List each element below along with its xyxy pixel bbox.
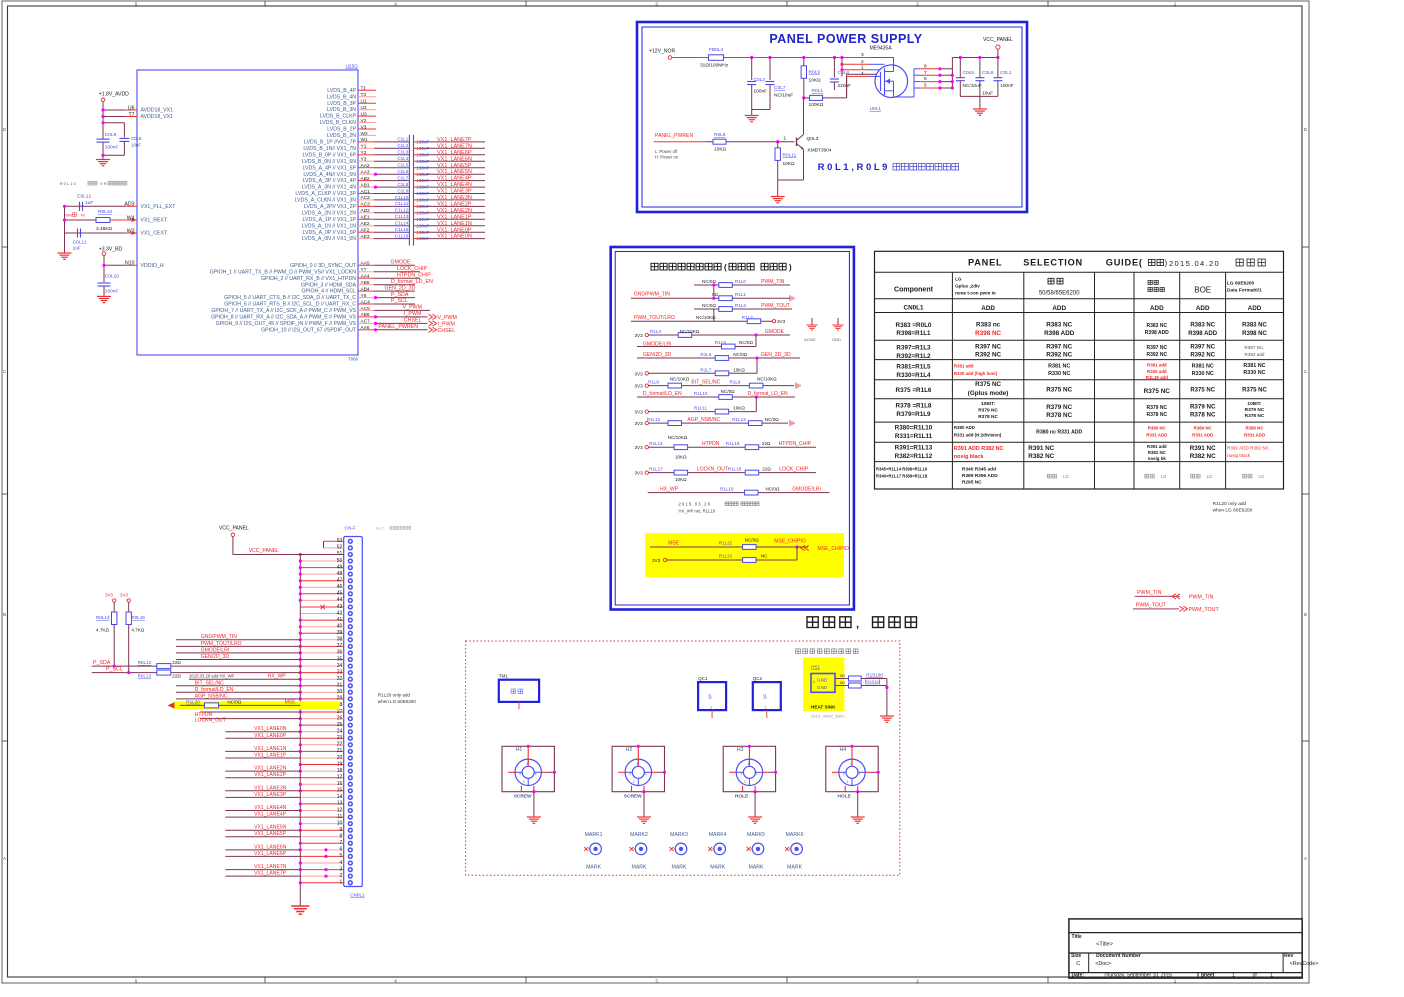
svg-text:T868: T868 [348,357,359,362]
svg-text:C1L16: C1L16 [395,233,409,238]
svg-text:R383 NC: R383 NC [1242,323,1267,329]
svg-text:R378 =R1L8: R378 =R1L8 [896,403,932,410]
svg-text:A: A [1304,856,1307,861]
svg-text:R398 NC: R398 NC [975,330,1001,337]
svg-text:2: 2 [861,59,864,65]
svg-text:2: 2 [340,873,343,879]
svg-text:3.48KΩ: 3.48KΩ [96,226,113,232]
svg-text:15: 15 [337,788,343,794]
svg-text:LVDS_B_4P: LVDS_B_4P [327,88,356,94]
svg-text:R381 add: R381 add [954,364,974,369]
svg-text:3V3: 3V3 [635,445,644,450]
svg-text:NC/0Ω: NC/0Ω [702,279,716,284]
svg-text:220nF: 220nF [838,83,852,89]
svg-text:VX1_LANE2N: VX1_LANE2N [254,766,287,772]
svg-text:R398 ADD: R398 ADD [1145,330,1169,336]
svg-text:VX1_LANE0N: VX1_LANE0N [437,234,472,240]
svg-text:NC: NC [761,554,768,559]
svg-text:PWM_TOUT/LRO: PWM_TOUT/LRO [634,315,675,321]
svg-text:VX1_LANE3P: VX1_LANE3P [254,792,287,798]
svg-text:HOLE: HOLE [735,794,749,800]
svg-text:MARK: MARK [710,865,726,871]
svg-text:42: 42 [337,610,343,616]
svg-text:45: 45 [337,591,343,597]
svg-text:C0L1: C0L1 [1000,70,1012,76]
svg-text:ADD: ADD [1150,305,1164,312]
svg-text:100nF: 100nF [416,210,429,215]
svg-text:8: 8 [340,834,343,840]
svg-text:<Title>: <Title> [1096,942,1113,948]
svg-text:C1L9: C1L9 [397,188,408,193]
svg-text:32: 32 [337,676,343,682]
svg-text:C1L10: C1L10 [395,195,409,200]
svg-text:53: 53 [337,538,343,544]
svg-text:R392 NC: R392 NC [1147,352,1168,358]
svg-text:R330 add (high lumi): R330 add (high lumi) [954,371,998,376]
svg-text:10KΩ: 10KΩ [714,147,727,153]
svg-text:R391 ADD R382 NC: R391 ADD R382 NC [1227,446,1270,451]
svg-text:1: 1 [645,772,647,776]
svg-text:3V3: 3V3 [635,384,644,389]
svg-text:LVDS_A_1N // VX1_1N: LVDS_A_1N // VX1_1N [302,223,356,229]
svg-text:GEN/2D_3D: GEN/2D_3D [643,352,672,358]
svg-text:MARK6: MARK6 [786,832,804,838]
svg-text:I_PWM: I_PWM [438,321,455,327]
svg-text:NC/0Ω: NC/0Ω [739,340,753,345]
svg-text:43: 43 [337,604,343,610]
svg-text:PWM_TOUT: PWM_TOUT [1189,607,1220,613]
svg-text:R331 ADD: R331 ADD [1192,433,1213,438]
svg-text:R0N: R0N [64,212,72,217]
svg-text:I_PWM: I_PWM [404,311,421,317]
svg-text:3: 3 [629,772,631,776]
svg-text:31: 31 [337,683,343,689]
svg-text:D: D [1304,127,1307,132]
svg-text:V_PWM: V_PWM [403,305,422,311]
svg-text:Component: Component [894,287,934,294]
svg-text:W2: W2 [361,131,369,137]
svg-text:Y3: Y3 [361,157,367,163]
svg-text:P_SCL: P_SCL [391,298,408,304]
svg-text:29: 29 [337,696,343,702]
svg-text:C: C [1076,961,1080,967]
svg-text:<Doc>: <Doc> [1095,961,1111,967]
svg-text:LOCKN_OUT: LOCKN_OUT [195,718,226,724]
svg-text:3V3: 3V3 [635,333,644,338]
svg-text:FB0L4: FB0L4 [709,47,723,53]
svg-text:3V3: 3V3 [105,593,113,598]
svg-text:GND/PWM_TIN: GND/PWM_TIN [201,634,238,640]
svg-text:431S_40W2_5B50: 431S_40W2_5B50 [811,714,845,719]
svg-text:3V3: 3V3 [635,410,644,415]
svg-text:GND: GND [817,678,828,683]
svg-text:NC/0Ω: NC/0Ω [227,700,241,705]
svg-text:CN0L1: CN0L1 [904,305,924,312]
svg-text:11: 11 [337,814,342,820]
svg-text:16: 16 [337,781,343,787]
svg-text:R1L9: R1L9 [730,380,741,385]
svg-text:U25G: U25G [345,64,358,70]
svg-text:10BIT:: 10BIT: [981,401,996,407]
svg-text:R1L3: R1L3 [735,303,746,308]
svg-text:R1L4: R1L4 [650,329,661,334]
svg-text:MARK5: MARK5 [747,832,765,838]
svg-text:R398 ADD: R398 ADD [1188,331,1217,337]
svg-text:D_format_LD_EN: D_format_LD_EN [391,279,433,285]
svg-text:H4: H4 [840,747,847,753]
svg-text:LVDS_B_0N // VX1_6N: LVDS_B_0N // VX1_6N [302,159,356,165]
svg-text:R378 NC: R378 NC [978,414,998,420]
svg-text:R392=R1L2: R392=R1L2 [896,353,931,360]
svg-text:R375 =R1L6: R375 =R1L6 [896,387,932,394]
svg-text:4.7KΩ: 4.7KΩ [131,628,144,633]
svg-text:LOCK_CHIP: LOCK_CHIP [397,266,427,272]
svg-text:R379 NC: R379 NC [1245,407,1265,413]
svg-text:10uF: 10uF [131,143,141,148]
svg-text:MSE: MSE [668,541,680,547]
svg-text:GPIOH_5 // UART_CTS_B // I2C_S: GPIOH_5 // UART_CTS_B // I2C_SDA_D // UA… [224,295,356,301]
svg-text:PWM_TIN: PWM_TIN [1137,590,1162,596]
svg-text:MARK2: MARK2 [630,832,648,838]
svg-text:10BIT:: 10BIT: [1247,401,1262,407]
svg-text:C0L11: C0L11 [73,240,87,246]
svg-text:R378 NC: R378 NC [1147,412,1168,418]
svg-text:3: 3 [740,772,742,776]
svg-text:SCREW: SCREW [624,794,642,800]
svg-text:R1L8: R1L8 [648,380,659,385]
svg-text:6: 6 [924,76,927,82]
svg-text:R0L10: R0L10 [98,209,112,215]
svg-text:GPIOH_8 // UART_RX_A // I2C_S: GPIOH_8 // UART_RX_A // I2C_SDA_A // PWM… [211,315,356,321]
svg-text:AVDD18_VX1: AVDD18_VX1 [141,114,174,120]
svg-text:LVDS_B_CLKN: LVDS_B_CLKN [320,120,356,126]
svg-text:4: 4 [861,71,864,77]
svg-text:NC/0Ω: NC/0Ω [702,303,716,308]
svg-text:NC/0Ω: NC/0Ω [721,389,735,394]
svg-text:38: 38 [337,637,343,643]
svg-text:HX_WP: HX_WP [660,487,679,493]
svg-text:TM1: TM1 [499,674,508,679]
svg-text:PANEL POWER SUPPLY: PANEL POWER SUPPLY [769,32,922,46]
svg-text:40: 40 [337,624,343,630]
svg-text:35: 35 [337,656,343,662]
svg-text:+3.3V_BD: +3.3V_BD [99,247,123,253]
svg-text:VDDIO_H: VDDIO_H [141,263,164,269]
svg-text:3V3: 3V3 [635,471,644,476]
svg-text:C: C [3,369,6,374]
svg-text:3V3: 3V3 [652,558,661,563]
svg-text:C0L7: C0L7 [774,85,786,91]
svg-text:30: 30 [337,689,343,695]
svg-text:VX1_LANE4P: VX1_LANE4P [254,812,287,818]
svg-text:27: 27 [337,709,343,715]
svg-text:P_SDA: P_SDA [93,660,111,666]
svg-text:100nF: 100nF [416,152,429,157]
svg-text:GND/PWM_TIN: GND/PWM_TIN [634,292,671,298]
svg-text:R1L6: R1L6 [700,352,711,357]
svg-text:C1L3: C1L3 [397,150,408,155]
svg-text:B: B [1304,612,1307,617]
svg-text:100nF: 100nF [416,172,429,177]
svg-text:A: A [3,856,6,861]
svg-text:L :Power off: L :Power off [655,149,678,154]
svg-text:18: 18 [337,768,343,774]
svg-text:CN-F: CN-F [345,526,357,532]
svg-text:R1L13: R1L13 [732,417,746,422]
svg-text:C1L11: C1L11 [395,201,409,206]
svg-text:QC: QC [763,693,767,699]
svg-text:100nF: 100nF [105,289,119,295]
svg-text:VX1_LANE3N: VX1_LANE3N [437,195,472,201]
svg-text:22Ω: 22Ω [762,441,771,446]
svg-text:R1L20 only add: R1L20 only add [378,693,411,698]
svg-text:C1L7: C1L7 [397,175,408,180]
svg-text:LVDS_A_3N // VX1_4N: LVDS_A_3N // VX1_4N [302,185,356,191]
svg-text:VX1_LANE5P: VX1_LANE5P [437,163,472,169]
svg-text:C1L15: C1L15 [395,227,409,232]
svg-text:R392 NC: R392 NC [1046,352,1072,359]
svg-text:nosig black: nosig black [954,454,984,460]
svg-text:31Ω/100MHz: 31Ω/100MHz [700,63,729,69]
svg-text:Thursday, September 10, 2015: Thursday, September 10, 2015 [1104,973,1173,979]
svg-text:10KΩ: 10KΩ [675,477,687,482]
svg-text:R398 ADD: R398 ADD [1044,330,1075,337]
svg-text:R392 NC: R392 NC [975,352,1001,359]
svg-text:10: 10 [337,820,343,826]
svg-text:2: 2 [633,780,635,784]
svg-text:1uF: 1uF [73,246,81,252]
svg-text:R381=R1L5: R381=R1L5 [896,364,931,371]
svg-text:LVDS_B_3P: LVDS_B_3P [327,101,356,107]
svg-text:22: 22 [337,742,343,748]
svg-text:21: 21 [337,748,343,754]
svg-text:1: 1 [784,136,787,142]
svg-text:R 0 L 1 , R 0 L 9: R 0 L 1 , R 0 L 9 [818,162,888,173]
svg-text:Rev: Rev [1284,953,1293,959]
svg-text:ADD: ADD [1248,305,1262,312]
svg-text:MARK1: MARK1 [585,832,603,838]
svg-text:R0L9: R0L9 [809,70,821,76]
svg-text:50: 50 [337,558,343,564]
svg-text:C0L5: C0L5 [963,70,975,76]
svg-text:KMBT3904: KMBT3904 [808,148,832,154]
svg-text:4: 4 [637,762,639,766]
svg-text:B: B [3,612,6,617]
svg-text:9: 9 [340,827,343,833]
svg-text:10KΩ: 10KΩ [809,78,822,84]
svg-text:PANEL: PANEL [968,258,1002,268]
svg-text:PWM_TIN: PWM_TIN [1189,595,1214,601]
svg-text:VX1_LANE5N: VX1_LANE5N [437,169,472,175]
svg-text:NC/10uF: NC/10uF [774,93,793,99]
svg-text:VX1_LANE7N: VX1_LANE7N [254,864,287,870]
svg-text:100nF: 100nF [416,236,429,241]
svg-text:19: 19 [337,761,343,767]
svg-text:3V3: 3V3 [777,319,786,324]
svg-text:10KΩ: 10KΩ [675,455,687,460]
svg-text:R382 NC: R382 NC [1148,450,1167,455]
svg-text:R375 NC: R375 NC [1144,388,1171,395]
svg-text:LVDS_A_CLKP // VX1_3P: LVDS_A_CLKP // VX1_3P [295,191,356,197]
svg-text:NC/0Ω: NC/0Ω [745,537,759,542]
svg-text:100nF: 100nF [416,217,429,222]
svg-text:R383 =R0L0: R383 =R0L0 [896,322,932,329]
svg-text:100nF: 100nF [416,204,429,209]
svg-text:R392 add: R392 add [1245,352,1265,357]
svg-text:17: 17 [337,775,343,781]
svg-text:R330 NC: R330 NC [1048,371,1070,377]
svg-text:9 x 1: 9 x 1 [376,527,384,531]
svg-text:3: 3 [519,772,521,776]
svg-text:VX1_LANE7P: VX1_LANE7P [437,137,472,143]
svg-text:R340=R1L17 R389=R1L18: R340=R1L17 R389=R1L18 [876,474,928,479]
svg-text:PANEL_PWREN: PANEL_PWREN [378,324,418,330]
svg-text:1uF: 1uF [85,200,93,206]
svg-text:GPIOH_3 // HDMI_SDA: GPIOH_3 // HDMI_SDA [301,282,357,288]
svg-text:ME9435A: ME9435A [870,46,893,52]
svg-text:MARK: MARK [586,865,602,871]
svg-text:AGP_NSB/NC: AGP_NSB/NC [195,694,228,700]
svg-text:VX1_LANE5P: VX1_LANE5P [254,831,287,837]
svg-text:4: 4 [748,762,750,766]
svg-text:2: 2 [523,780,525,784]
svg-text:): ) [1165,259,1168,268]
svg-text:GPIOH_6 // UART_RTS_B // I2C_S: GPIOH_6 // UART_RTS_B // I2C_SCL_D // UA… [224,302,356,308]
svg-text:100nF: 100nF [1000,83,1014,89]
svg-text:LG: LG [955,277,962,282]
svg-text:SELECTION: SELECTION [1023,258,1083,268]
svg-text:R381 NC: R381 NC [1243,363,1265,369]
svg-text:HEAT SINK: HEAT SINK [811,705,836,710]
svg-text:R330 NC: R330 NC [1192,371,1214,377]
svg-text:nosig bk: nosig bk [1148,456,1167,461]
svg-text:QC2: QC2 [753,676,763,681]
svg-text:HX_WP net, R1L19: HX_WP net, R1L19 [679,509,716,514]
svg-text:NC/10KΩ: NC/10KΩ [670,377,690,382]
svg-text:R1L19 add: R1L19 add [1146,375,1169,380]
svg-text:R397 NC: R397 NC [1046,344,1072,351]
svg-text:8: 8 [924,63,927,69]
svg-text:R331 add (H:2division): R331 add (H:2division) [954,433,1002,438]
svg-text:14: 14 [337,794,343,800]
svg-text:R375 NC: R375 NC [1190,388,1215,394]
svg-text:100nF: 100nF [416,165,429,170]
svg-text:of: of [1253,973,1258,979]
svg-text:Sheet: Sheet [1201,973,1215,979]
svg-text:MSE: MSE [285,700,297,706]
svg-text:VX1_LANE1N: VX1_LANE1N [254,746,287,752]
svg-text:R1L22: R1L22 [719,541,733,546]
svg-text:R389 R396 ADD: R389 R396 ADD [962,473,998,479]
svg-text:PWM_TOUT/LRO: PWM_TOUT/LRO [201,641,242,647]
svg-text:MARK4: MARK4 [709,832,727,838]
svg-text:V R: V R [100,181,107,186]
svg-text:R1L10: R1L10 [694,391,708,396]
svg-text:,: , [856,619,859,631]
svg-text:24: 24 [337,729,343,735]
svg-text:LVDS_A_2P// VX1_2P: LVDS_A_2P// VX1_2P [304,204,357,210]
svg-text:R381 NC: R381 NC [1048,364,1070,370]
svg-text:HX_WP: HX_WP [268,674,287,680]
svg-text:BIT_SEL/NC: BIT_SEL/NC [691,380,720,386]
svg-text:3: 3 [340,866,343,872]
svg-text:Gplus ,2div: Gplus ,2div [955,284,980,289]
svg-text:C0L9: C0L9 [105,132,117,138]
svg-text:100nF: 100nF [416,178,429,183]
svg-text:NC/0Ω: NC/0Ω [765,417,779,422]
svg-text:NC/10uF: NC/10uF [963,83,982,89]
svg-text:100nF: 100nF [416,140,429,145]
svg-text:46: 46 [337,584,343,590]
svg-text:ADD: ADD [981,305,995,312]
svg-text:P_SDA: P_SDA [391,292,409,298]
svg-text:37: 37 [337,643,343,649]
svg-text:VX1_LANE7P: VX1_LANE7P [254,871,287,877]
svg-text:22Ω: 22Ω [172,660,181,665]
svg-text:R378 NC: R378 NC [1046,412,1072,419]
svg-text:100nF: 100nF [416,146,429,151]
svg-text:100nF: 100nF [416,198,429,203]
svg-text:CHSEL: CHSEL [404,318,422,324]
svg-text:R380 NC: R380 NC [1194,426,1213,431]
svg-text:R331 ADD: R331 ADD [1146,433,1167,438]
svg-text:R383 nc: R383 nc [976,322,1001,329]
svg-text:NC/10KΩ: NC/10KΩ [757,377,777,382]
svg-text:R330 NC: R330 NC [1243,370,1265,376]
svg-text:AGND: AGND [804,337,816,342]
svg-text:R1S101: R1S101 [866,679,881,684]
svg-text:R398=R1L1: R398=R1L1 [896,330,931,337]
svg-text:GEN_2D_3D: GEN_2D_3D [761,352,791,358]
svg-text:47: 47 [337,578,343,584]
svg-text:LVDS_B_CLKP: LVDS_B_CLKP [320,114,356,120]
svg-text:BIT_SEL/NC: BIT_SEL/NC [195,681,224,687]
svg-text:when LG 60E6200: when LG 60E6200 [378,699,417,704]
svg-text:H1: H1 [516,747,523,753]
svg-text:4.7KΩ: 4.7KΩ [96,628,109,633]
svg-text:(: ( [724,263,727,272]
svg-text:MARK: MARK [787,865,803,871]
svg-text:R382 NC: R382 NC [1190,453,1216,460]
svg-text:R1L5: R1L5 [715,340,726,345]
svg-text:GMODE/LRI: GMODE/LRI [643,341,672,347]
svg-text:36: 36 [337,650,343,656]
svg-text:R391 NC: R391 NC [1028,445,1054,452]
svg-text:R382 NC: R382 NC [1028,453,1054,460]
svg-text:NC/10KΩ: NC/10KΩ [696,315,716,320]
svg-text:LG 60E6200: LG 60E6200 [1227,281,1255,287]
svg-text:R397 NC: R397 NC [1190,345,1215,351]
svg-text:NC/0Ω: NC/0Ω [766,487,780,492]
svg-text:VX1_LANE6N: VX1_LANE6N [437,156,472,162]
svg-text:48: 48 [337,571,343,577]
svg-text:BOE: BOE [1194,286,1211,295]
svg-text:0Ω: 0Ω [712,292,719,297]
svg-text:R380 ADD: R380 ADD [954,425,975,430]
svg-text:10KΩ: 10KΩ [733,406,745,411]
svg-text:R398 NC: R398 NC [1242,331,1267,337]
svg-text:LVDS_A_0P // VX1_0P: LVDS_A_0P // VX1_0P [303,230,357,236]
svg-text:3V3: 3V3 [635,421,644,426]
svg-text:R380=R1L10: R380=R1L10 [895,425,933,432]
svg-text:VX1_LANE7N: VX1_LANE7N [437,143,472,149]
svg-text:GPIOH_1 // UART_TX_B // PWM_D: GPIOH_1 // UART_TX_B // PWM_D // PWM_VS/… [210,269,357,275]
svg-text:GPIOH_4 // HDMI_SCL: GPIOH_4 // HDMI_SCL [302,289,357,295]
svg-text:C1L4: C1L4 [397,156,408,161]
svg-text:R0L8: R0L8 [714,132,726,138]
svg-text:+12V_NOR: +12V_NOR [649,49,676,55]
svg-text:1: 1 [859,772,861,776]
